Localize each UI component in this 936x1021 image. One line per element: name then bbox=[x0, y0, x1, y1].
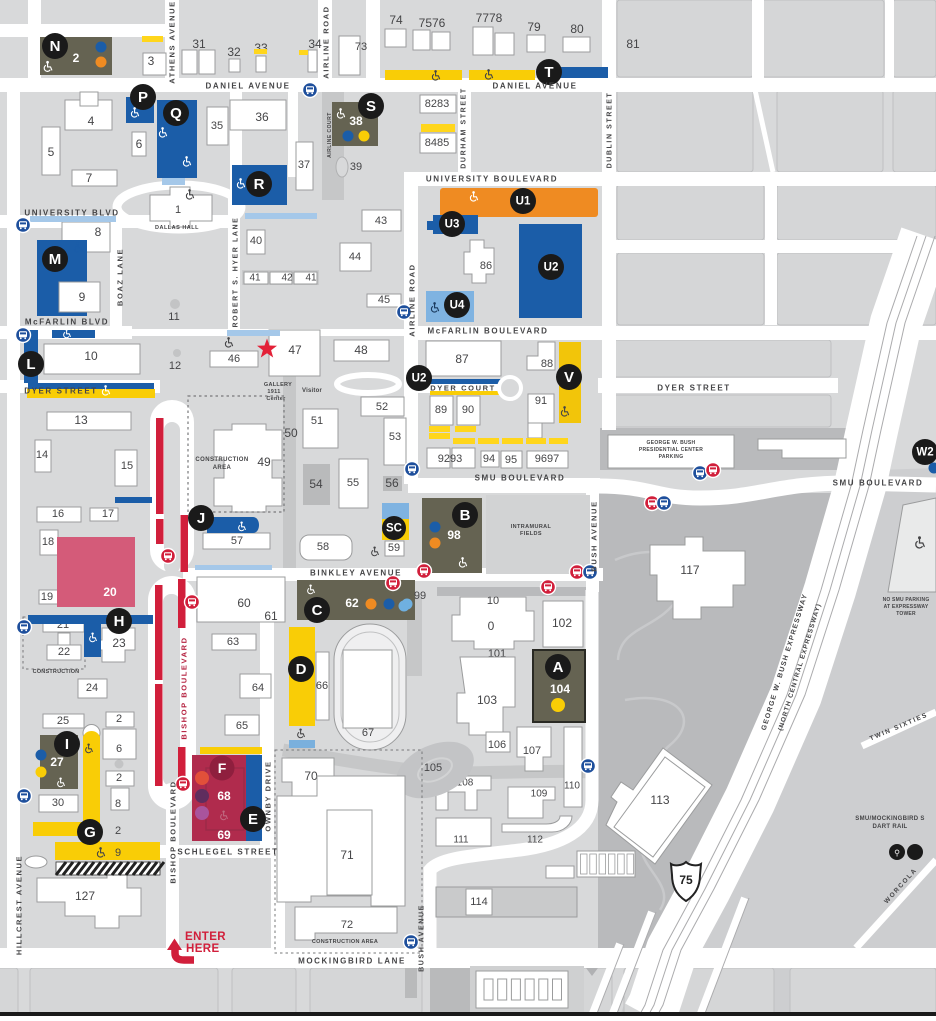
svg-text:55: 55 bbox=[347, 477, 359, 489]
svg-text:SMU/MOCKINGBIRD S: SMU/MOCKINGBIRD S bbox=[855, 816, 924, 822]
svg-text:AREA: AREA bbox=[213, 465, 232, 471]
svg-text:UNIVERSITY BOULEVARD: UNIVERSITY BOULEVARD bbox=[426, 175, 558, 184]
svg-text:23: 23 bbox=[112, 636, 126, 650]
svg-text:48: 48 bbox=[354, 343, 368, 357]
svg-text:S: S bbox=[366, 98, 376, 115]
svg-text:DALLAS HALL: DALLAS HALL bbox=[155, 225, 199, 231]
svg-text:58: 58 bbox=[317, 541, 329, 553]
svg-text:99: 99 bbox=[414, 590, 426, 602]
svg-text:8485: 8485 bbox=[425, 137, 449, 149]
svg-text:57: 57 bbox=[231, 535, 243, 547]
svg-text:24: 24 bbox=[86, 682, 98, 694]
svg-text:80: 80 bbox=[570, 22, 584, 36]
svg-text:22: 22 bbox=[58, 646, 70, 658]
svg-text:SMU BOULEVARD: SMU BOULEVARD bbox=[833, 479, 924, 488]
svg-text:9293: 9293 bbox=[438, 453, 462, 465]
svg-text:U2: U2 bbox=[544, 262, 559, 274]
svg-text:SC: SC bbox=[386, 523, 402, 535]
svg-text:Center: Center bbox=[266, 396, 286, 402]
svg-text:3: 3 bbox=[148, 54, 155, 68]
svg-text:9: 9 bbox=[115, 847, 121, 859]
svg-text:66: 66 bbox=[316, 680, 328, 692]
svg-text:2: 2 bbox=[73, 51, 80, 65]
svg-text:91: 91 bbox=[535, 395, 547, 407]
svg-text:Q: Q bbox=[170, 105, 182, 122]
svg-text:TOWER: TOWER bbox=[896, 611, 916, 617]
svg-text:F: F bbox=[218, 760, 227, 776]
svg-text:A: A bbox=[553, 659, 564, 676]
svg-text:BISHOP BOULEVARD: BISHOP BOULEVARD bbox=[180, 636, 189, 739]
svg-text:AIRLINE ROAD: AIRLINE ROAD bbox=[322, 5, 331, 78]
svg-text:61: 61 bbox=[264, 609, 278, 623]
svg-text:AIRLINE COURT: AIRLINE COURT bbox=[327, 112, 333, 158]
svg-text:L: L bbox=[26, 356, 35, 373]
svg-text:31: 31 bbox=[192, 37, 206, 51]
svg-text:McFARLIN BLVD: McFARLIN BLVD bbox=[25, 318, 109, 327]
svg-text:30: 30 bbox=[52, 797, 64, 809]
svg-text:67: 67 bbox=[362, 727, 374, 739]
svg-text:2: 2 bbox=[115, 825, 121, 837]
svg-text:BOAZ LANE: BOAZ LANE bbox=[116, 248, 125, 306]
svg-text:M: M bbox=[49, 251, 62, 268]
svg-text:McFARLIN BOULEVARD: McFARLIN BOULEVARD bbox=[427, 327, 548, 336]
svg-text:MOCKINGBIRD LANE: MOCKINGBIRD LANE bbox=[298, 957, 406, 966]
svg-text:NO SMU PARKING: NO SMU PARKING bbox=[883, 597, 930, 603]
svg-text:35: 35 bbox=[211, 120, 223, 132]
svg-text:HILLCREST AVENUE: HILLCREST AVENUE bbox=[15, 855, 24, 955]
svg-text:20: 20 bbox=[103, 585, 117, 599]
svg-text:10: 10 bbox=[84, 349, 98, 363]
svg-text:CONSTRUCTION AREA: CONSTRUCTION AREA bbox=[312, 939, 378, 945]
svg-text:ROBERT S. HYER LANE: ROBERT S. HYER LANE bbox=[233, 217, 240, 328]
svg-text:117: 117 bbox=[680, 563, 699, 577]
svg-text:63: 63 bbox=[227, 636, 239, 648]
svg-text:9697: 9697 bbox=[535, 453, 559, 465]
svg-text:U4: U4 bbox=[450, 300, 465, 312]
svg-text:40: 40 bbox=[250, 235, 262, 247]
svg-text:10: 10 bbox=[487, 595, 499, 607]
svg-text:U3: U3 bbox=[445, 219, 460, 231]
svg-text:46: 46 bbox=[228, 353, 240, 365]
svg-text:39: 39 bbox=[350, 161, 362, 173]
svg-text:114: 114 bbox=[470, 896, 488, 908]
svg-text:W2: W2 bbox=[916, 447, 933, 459]
svg-text:50: 50 bbox=[284, 426, 298, 440]
svg-text:DURHAM STREET: DURHAM STREET bbox=[461, 87, 468, 168]
svg-text:1: 1 bbox=[175, 204, 181, 216]
svg-text:37: 37 bbox=[298, 159, 310, 171]
svg-text:94: 94 bbox=[483, 453, 495, 465]
svg-text:R: R bbox=[254, 176, 265, 193]
svg-text:25: 25 bbox=[57, 715, 69, 727]
svg-text:DANIEL AVENUE: DANIEL AVENUE bbox=[492, 82, 577, 91]
svg-text:FIELDS: FIELDS bbox=[520, 531, 542, 537]
svg-text:98: 98 bbox=[447, 528, 461, 542]
svg-text:OWNBY DRIVE: OWNBY DRIVE bbox=[264, 760, 273, 831]
svg-text:J: J bbox=[197, 510, 205, 527]
svg-text:52: 52 bbox=[376, 401, 388, 413]
svg-text:88: 88 bbox=[541, 358, 553, 370]
svg-text:72: 72 bbox=[341, 919, 353, 931]
svg-text:54: 54 bbox=[309, 477, 323, 491]
svg-text:DYER COURT: DYER COURT bbox=[430, 384, 496, 393]
svg-text:59: 59 bbox=[388, 542, 400, 554]
svg-text:49: 49 bbox=[257, 455, 271, 469]
svg-text:INTRAMURAL: INTRAMURAL bbox=[511, 524, 552, 530]
svg-text:HERE: HERE bbox=[186, 943, 220, 955]
svg-text:41: 41 bbox=[305, 273, 317, 284]
svg-text:SMU BOULEVARD: SMU BOULEVARD bbox=[475, 474, 566, 483]
svg-text:15: 15 bbox=[121, 460, 133, 472]
svg-text:6: 6 bbox=[136, 137, 143, 151]
svg-text:60: 60 bbox=[237, 596, 251, 610]
svg-text:D: D bbox=[296, 661, 307, 678]
svg-text:32: 32 bbox=[227, 45, 241, 59]
svg-text:DUBLIN STREET: DUBLIN STREET bbox=[607, 92, 614, 169]
svg-text:C: C bbox=[312, 602, 323, 619]
svg-text:2: 2 bbox=[116, 713, 122, 725]
svg-text:SCHLEGEL STREET: SCHLEGEL STREET bbox=[177, 848, 278, 857]
svg-text:112: 112 bbox=[527, 835, 543, 846]
svg-text:T: T bbox=[544, 64, 553, 81]
svg-text:110: 110 bbox=[564, 781, 580, 792]
svg-text:DART RAIL: DART RAIL bbox=[872, 824, 907, 830]
svg-text:36: 36 bbox=[255, 110, 269, 124]
svg-text:AIRLINE ROAD: AIRLINE ROAD bbox=[408, 263, 417, 336]
svg-text:DYER STREET: DYER STREET bbox=[24, 387, 98, 396]
svg-text:56: 56 bbox=[385, 476, 399, 490]
svg-text:4: 4 bbox=[88, 114, 95, 128]
svg-text:75: 75 bbox=[679, 873, 693, 887]
svg-text:CONSTRUCTION: CONSTRUCTION bbox=[33, 669, 80, 675]
svg-text:27: 27 bbox=[50, 755, 64, 769]
svg-text:7576: 7576 bbox=[419, 16, 446, 30]
svg-text:2: 2 bbox=[116, 772, 122, 784]
svg-text:H: H bbox=[114, 613, 125, 630]
svg-text:44: 44 bbox=[349, 251, 361, 263]
svg-text:64: 64 bbox=[252, 682, 264, 694]
svg-text:41: 41 bbox=[249, 273, 261, 284]
svg-text:107: 107 bbox=[523, 745, 541, 757]
svg-text:BUSH AVENUE: BUSH AVENUE bbox=[590, 500, 599, 571]
svg-text:8: 8 bbox=[115, 798, 121, 810]
svg-text:GEORGE W. BUSH: GEORGE W. BUSH bbox=[647, 440, 696, 446]
svg-text:GALLERY: GALLERY bbox=[264, 382, 292, 388]
svg-text:BINKLEY AVENUE: BINKLEY AVENUE bbox=[310, 569, 402, 578]
svg-text:74: 74 bbox=[389, 13, 403, 27]
svg-text:79: 79 bbox=[527, 20, 541, 34]
svg-text:BISHOP BOULEVARD: BISHOP BOULEVARD bbox=[169, 780, 178, 883]
svg-text:69: 69 bbox=[217, 828, 231, 842]
svg-text:45: 45 bbox=[378, 294, 390, 306]
svg-text:5: 5 bbox=[48, 145, 55, 159]
svg-text:Visitor: Visitor bbox=[302, 388, 322, 394]
svg-text:1911: 1911 bbox=[267, 389, 280, 395]
svg-text:65: 65 bbox=[236, 720, 248, 732]
svg-text:127: 127 bbox=[75, 889, 95, 903]
svg-text:PRESIDENTIAL CENTER: PRESIDENTIAL CENTER bbox=[639, 447, 703, 453]
svg-text:BUSH AVENUE: BUSH AVENUE bbox=[419, 904, 426, 972]
svg-text:62: 62 bbox=[345, 596, 359, 610]
svg-text:113: 113 bbox=[650, 793, 669, 807]
svg-text:34: 34 bbox=[308, 37, 322, 51]
svg-text:102: 102 bbox=[552, 616, 572, 630]
svg-text:8: 8 bbox=[95, 225, 102, 239]
svg-text:I: I bbox=[65, 736, 69, 753]
svg-text:U2: U2 bbox=[412, 373, 427, 385]
svg-text:104: 104 bbox=[550, 682, 570, 696]
svg-text:73: 73 bbox=[355, 41, 367, 53]
svg-text:43: 43 bbox=[375, 215, 387, 227]
svg-text:95: 95 bbox=[505, 454, 517, 466]
svg-text:12: 12 bbox=[169, 360, 181, 372]
svg-text:51: 51 bbox=[311, 415, 323, 427]
svg-text:70: 70 bbox=[304, 769, 318, 783]
svg-text:0: 0 bbox=[488, 619, 495, 633]
svg-text:8283: 8283 bbox=[425, 98, 449, 110]
svg-text:UNIVERSITY BLVD: UNIVERSITY BLVD bbox=[24, 209, 119, 218]
svg-text:⚲: ⚲ bbox=[894, 849, 900, 858]
svg-text:7: 7 bbox=[86, 171, 93, 185]
svg-text:111: 111 bbox=[453, 835, 469, 846]
svg-text:47: 47 bbox=[288, 343, 302, 357]
svg-text:ATHENS AVENUE: ATHENS AVENUE bbox=[168, 0, 177, 84]
svg-text:7778: 7778 bbox=[476, 11, 503, 25]
svg-text:CONSTRUCTION: CONSTRUCTION bbox=[195, 457, 248, 463]
svg-text:68: 68 bbox=[217, 789, 231, 803]
svg-text:DANIEL AVENUE: DANIEL AVENUE bbox=[205, 82, 290, 91]
svg-text:N: N bbox=[50, 38, 61, 55]
svg-text:14: 14 bbox=[36, 449, 48, 461]
svg-text:ENTER: ENTER bbox=[185, 931, 226, 943]
svg-text:17: 17 bbox=[102, 508, 114, 520]
svg-text:87: 87 bbox=[455, 352, 469, 366]
svg-text:18: 18 bbox=[42, 536, 54, 548]
svg-text:11: 11 bbox=[168, 311, 179, 323]
svg-text:90: 90 bbox=[462, 404, 474, 416]
svg-text:V: V bbox=[564, 369, 574, 386]
svg-text:PARKING: PARKING bbox=[659, 454, 684, 460]
svg-text:103: 103 bbox=[477, 693, 497, 707]
svg-text:G: G bbox=[84, 824, 96, 841]
svg-text:53: 53 bbox=[389, 431, 401, 443]
svg-text:16: 16 bbox=[52, 508, 64, 520]
svg-text:E: E bbox=[248, 811, 258, 828]
svg-text:13: 13 bbox=[74, 413, 88, 427]
svg-text:U1: U1 bbox=[516, 196, 531, 208]
svg-text:DYER STREET: DYER STREET bbox=[657, 384, 731, 393]
svg-text:AT EXPRESSWAY: AT EXPRESSWAY bbox=[884, 604, 929, 610]
svg-text:19: 19 bbox=[41, 591, 53, 603]
svg-text:B: B bbox=[460, 507, 471, 524]
svg-text:71: 71 bbox=[340, 848, 354, 862]
svg-text:38: 38 bbox=[349, 114, 363, 128]
svg-text:106: 106 bbox=[488, 739, 506, 751]
svg-text:6: 6 bbox=[116, 743, 122, 755]
svg-text:81: 81 bbox=[626, 37, 640, 51]
svg-text:89: 89 bbox=[435, 404, 447, 416]
svg-text:109: 109 bbox=[531, 789, 548, 800]
svg-text:42: 42 bbox=[281, 273, 293, 284]
svg-text:9: 9 bbox=[79, 290, 86, 304]
svg-text:P: P bbox=[138, 89, 148, 106]
svg-text:86: 86 bbox=[480, 260, 492, 272]
svg-text:105: 105 bbox=[424, 762, 442, 774]
